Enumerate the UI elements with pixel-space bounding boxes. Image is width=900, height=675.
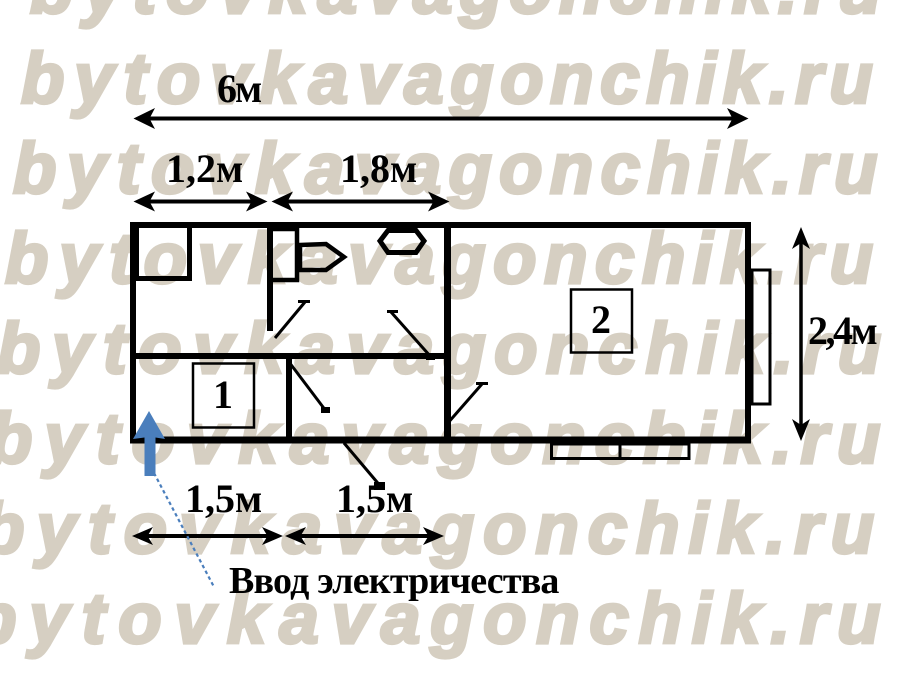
svg-text:1,2м: 1,2м: [166, 146, 243, 191]
svg-text:6м: 6м: [217, 66, 261, 111]
svg-text:2: 2: [591, 297, 611, 342]
svg-text:1,8м: 1,8м: [340, 146, 417, 191]
svg-text:1: 1: [213, 372, 233, 417]
svg-text:Ввод электричества: Ввод электричества: [229, 560, 559, 602]
svg-text:1,5м: 1,5м: [336, 476, 413, 521]
svg-text:1,5м: 1,5м: [185, 476, 262, 521]
svg-text:2,4м: 2,4м: [808, 308, 877, 353]
